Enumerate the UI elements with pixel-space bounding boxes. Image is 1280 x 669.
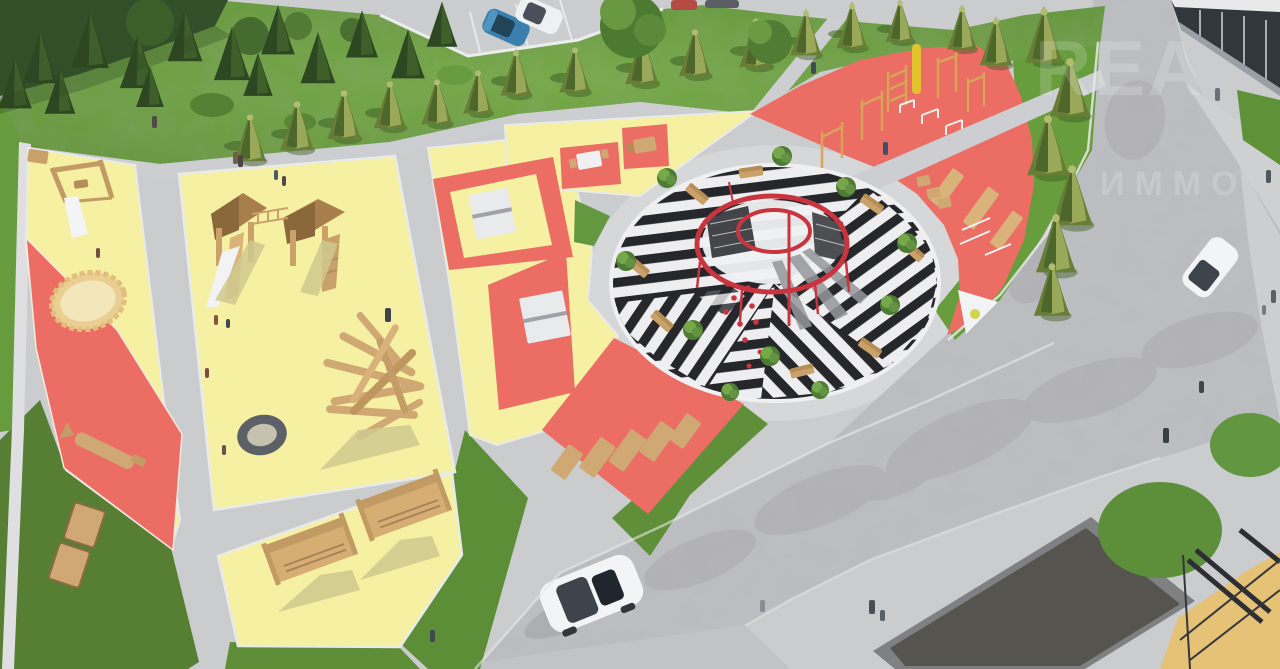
svg-text:REA: REA — [1035, 24, 1206, 112]
svg-text:ИММО: ИММО — [1100, 165, 1248, 203]
